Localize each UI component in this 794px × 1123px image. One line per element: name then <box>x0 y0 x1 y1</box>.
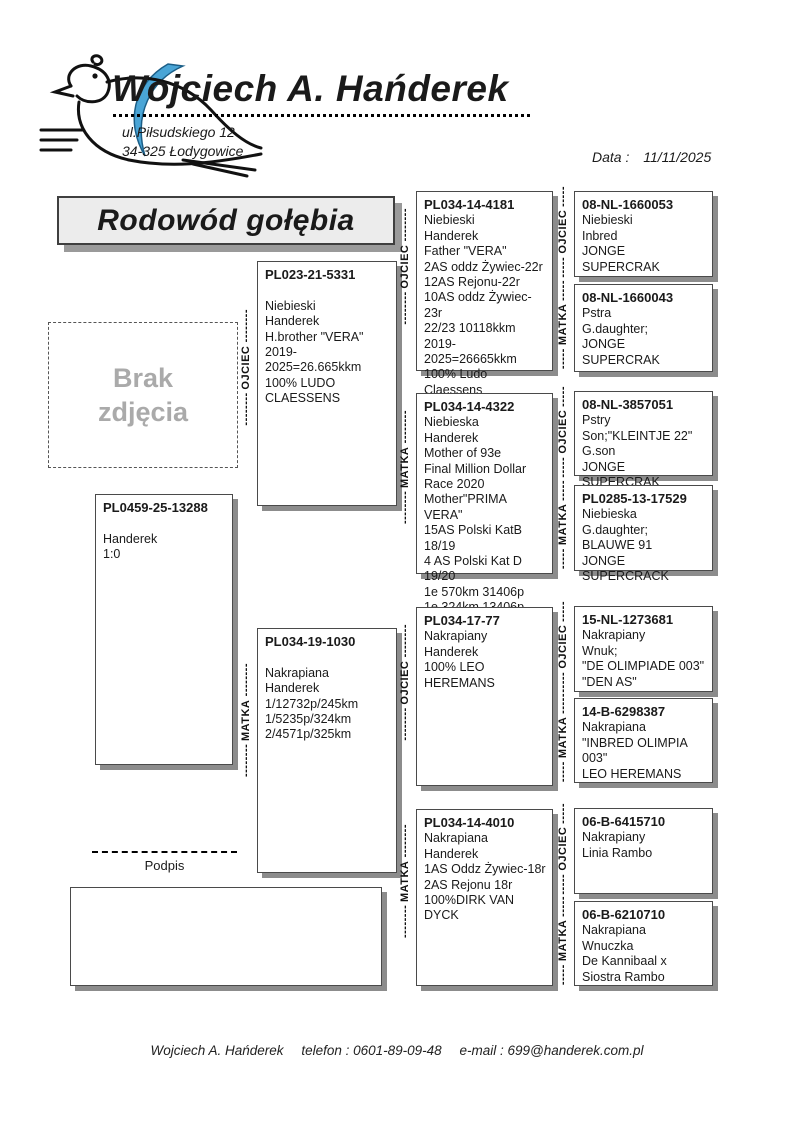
relation-label-father: --------OJCIEC-------- <box>399 208 411 325</box>
footer: Wojciech A. Hańderek telefon : 0601-89-0… <box>0 1043 794 1058</box>
pedigree-box-father: PL023-21-5331 Niebieski Handerek H.broth… <box>257 261 397 506</box>
signature-line <box>92 851 237 853</box>
date-line: Data : 11/11/2025 <box>592 149 711 165</box>
photo-placeholder-text: Brak zdjęcia <box>98 361 188 429</box>
pedigree-box-great-grandparent: 06-B-6210710 Nakrapiana Wnuczka De Kanni… <box>574 901 713 986</box>
pedigree-box-great-grandparent: 08-NL-3857051 Pstry Son;"KLEINTJE 22" G.… <box>574 391 713 476</box>
owner-name: Wojciech A. Hańderek <box>112 68 509 110</box>
relation-label-father: --------OJCIEC-------- <box>399 624 411 741</box>
relation-label-mother: -----MATKA----- <box>557 280 569 369</box>
ring-number: 15-NL-1273681 <box>582 612 706 627</box>
header-divider <box>113 114 530 117</box>
ring-number: 08-NL-3857051 <box>582 397 706 412</box>
relation-label-mother: --------MATKA-------- <box>399 824 411 938</box>
ring-number: PL023-21-5331 <box>265 267 390 282</box>
pedigree-box-great-grandparent: 06-B-6415710 Nakrapiany Linia Rambo <box>574 808 713 894</box>
ring-number: PL034-19-1030 <box>265 634 390 649</box>
pigeon-details: Niebieska G.daughter; BLAUWE 91 JONGE SU… <box>582 507 706 584</box>
footer-name: Wojciech A. Hańderek <box>151 1043 284 1058</box>
pigeon-details: Pstry Son;"KLEINTJE 22" G.son JONGE SUPE… <box>582 413 706 490</box>
date-value: 11/11/2025 <box>643 149 711 165</box>
document-title: Rodowód gołębia <box>97 204 354 238</box>
pigeon-details: Nakrapiany Linia Rambo <box>582 830 706 861</box>
signature-label: Podpis <box>92 858 237 873</box>
pigeon-details: Handerek 1:0 <box>103 516 226 562</box>
pigeon-details: Pstra G.daughter; JONGE SUPERCRAK <box>582 306 706 368</box>
ring-number: PL0285-13-17529 <box>582 491 706 506</box>
pigeon-details: Niebieski Handerek H.brother "VERA" 2019… <box>265 283 390 406</box>
relation-label-mother: -----MATKA----- <box>557 896 569 985</box>
pigeon-details: Nakrapiany Handerek 100% LEO HEREMANS <box>424 629 546 691</box>
ring-number: PL034-17-77 <box>424 613 546 628</box>
document-title-box: Rodowód gołębia <box>57 196 395 245</box>
pigeon-details: Nakrapiany Wnuk; "DE OLIMPIADE 003" "DEN… <box>582 628 706 690</box>
date-label: Data : <box>592 149 629 165</box>
pigeon-details: Niebieska Handerek Mother of 93e Final M… <box>424 415 546 631</box>
pedigree-box-grandfather: PL034-14-4181 Niebieski Handerek Father … <box>416 191 553 371</box>
ring-number: PL0459-25-13288 <box>103 500 226 515</box>
notes-box <box>70 887 382 986</box>
footer-phone: telefon : 0601-89-09-48 <box>301 1043 441 1058</box>
pedigree-box-great-grandparent: 08-NL-1660053 Niebieski Inbred JONGE SUP… <box>574 191 713 277</box>
footer-email: e-mail : 699@handerek.com.pl <box>459 1043 643 1058</box>
pedigree-box-great-grandparent: 08-NL-1660043 Pstra G.daughter; JONGE SU… <box>574 284 713 372</box>
ring-number: PL034-14-4010 <box>424 815 546 830</box>
photo-placeholder-box: Brak zdjęcia <box>48 322 238 468</box>
pedigree-box-grandmother: PL034-14-4322 Niebieska Handerek Mother … <box>416 393 553 574</box>
relation-label-father: --------OJCIEC-------- <box>240 309 252 426</box>
ring-number: 06-B-6210710 <box>582 907 706 922</box>
pedigree-document: Wojciech A. Hańderek ul.Piłsudskiego 12 … <box>0 0 794 1123</box>
relation-label-mother: -----MATKA----- <box>557 693 569 782</box>
relation-label-father: -----OJCIEC----- <box>557 386 569 478</box>
pedigree-box-great-grandparent: PL0285-13-17529 Niebieska G.daughter; BL… <box>574 485 713 571</box>
pedigree-box-grandfather: PL034-17-77 Nakrapiany Handerek 100% LEO… <box>416 607 553 786</box>
ring-number: 08-NL-1660053 <box>582 197 706 212</box>
ring-number: PL034-14-4181 <box>424 197 546 212</box>
pigeon-details: Nakrapiana "INBRED OLIMPIA 003" LEO HERE… <box>582 720 706 782</box>
pedigree-box-great-grandparent: 14-B-6298387 Nakrapiana "INBRED OLIMPIA … <box>574 698 713 783</box>
ring-number: 14-B-6298387 <box>582 704 706 719</box>
pigeon-details: Nakrapiana Wnuczka De Kannibaal x Siostr… <box>582 923 706 985</box>
relation-label-father: -----OJCIEC----- <box>557 601 569 693</box>
pigeon-details: Nakrapiana Handerek 1AS Oddz Żywiec-18r … <box>424 831 546 923</box>
relation-label-father: -----OJCIEC----- <box>557 186 569 278</box>
pedigree-box-great-grandparent: 15-NL-1273681 Nakrapiany Wnuk; "DE OLIMP… <box>574 606 713 692</box>
pigeon-details: Niebieski Inbred JONGE SUPERCRAK <box>582 213 706 275</box>
ring-number: PL034-14-4322 <box>424 399 546 414</box>
pigeon-eye <box>92 73 97 78</box>
ring-number: 08-NL-1660043 <box>582 290 706 305</box>
relation-label-father: -----OJCIEC----- <box>557 803 569 895</box>
pedigree-box-subject: PL0459-25-13288 Handerek 1:0 <box>95 494 233 765</box>
relation-label-mother: --------MATKA-------- <box>240 663 252 777</box>
owner-address: ul.Piłsudskiego 12 34-325 Łodygowice <box>122 123 243 161</box>
pedigree-box-mother: PL034-19-1030 Nakrapiana Handerek 1/1273… <box>257 628 397 873</box>
pigeon-details: Nakrapiana Handerek 1/12732p/245km 1/523… <box>265 650 390 742</box>
pedigree-box-grandmother: PL034-14-4010 Nakrapiana Handerek 1AS Od… <box>416 809 553 986</box>
relation-label-mother: --------MATKA-------- <box>399 410 411 524</box>
relation-label-mother: -----MATKA----- <box>557 480 569 569</box>
ring-number: 06-B-6415710 <box>582 814 706 829</box>
